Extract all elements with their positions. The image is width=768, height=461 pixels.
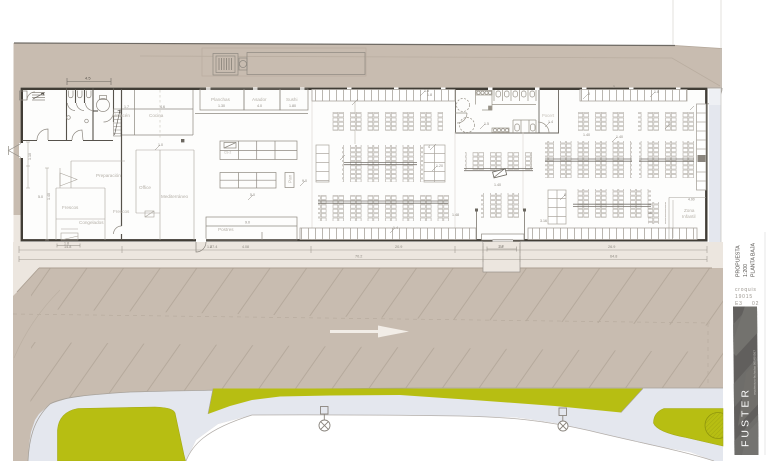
svg-text:Frescos: Frescos [113,209,130,214]
svg-text:1.7: 1.7 [124,105,129,109]
svg-text:CS-2: CS-2 [224,151,231,155]
svg-text:PROPUESTA: PROPUESTA [736,245,742,277]
svg-text:Planchas: Planchas [211,97,231,102]
svg-text:PLANTA BAJA: PLANTA BAJA [751,243,757,277]
svg-text:1.40: 1.40 [494,183,501,187]
svg-text:Asador: Asador [252,97,267,102]
svg-text:1.40: 1.40 [47,193,51,200]
svg-text:64.8: 64.8 [610,255,617,259]
svg-text:1.20: 1.20 [436,164,443,168]
svg-text:Office: Office [139,185,151,190]
svg-text:1:200: 1:200 [743,264,749,277]
svg-text:02: 02 [752,301,759,307]
svg-text:1.4: 1.4 [548,120,553,124]
svg-text:4.0: 4.0 [257,104,262,108]
svg-text:8: 8 [564,193,566,197]
svg-text:5: 5 [613,85,615,89]
svg-text:1.30: 1.30 [218,104,225,108]
svg-text:5: 5 [668,122,670,126]
svg-text:4.5: 4.5 [85,76,91,81]
svg-text:1.4: 1.4 [393,226,398,230]
svg-text:19015: 19015 [735,294,753,300]
svg-text:70.2: 70.2 [355,255,362,259]
svg-text:Frescos: Frescos [62,205,79,210]
svg-text:Pocert: Pocert [542,113,555,118]
svg-text:Sushi: Sushi [286,97,298,102]
svg-text:Infantil: Infantil [682,214,696,219]
svg-text:5.0: 5.0 [38,195,43,199]
svg-text:16: 16 [648,211,652,215]
svg-text:1.8: 1.8 [427,93,432,97]
svg-text:Congelados: Congelados [79,220,104,225]
svg-text:3.8: 3.8 [498,245,503,249]
svg-text:5.0: 5.0 [250,193,255,197]
svg-text:1.10: 1.10 [28,153,32,160]
svg-text:FUSTER: FUSTER [740,387,752,447]
svg-text:27.4: 27.4 [210,245,217,249]
svg-text:4.00: 4.00 [688,198,695,202]
svg-text:5: 5 [588,92,590,96]
svg-text:9.0: 9.0 [302,179,307,183]
svg-text:1.8: 1.8 [654,90,659,94]
svg-text:Pan: Pan [288,174,293,183]
svg-text:26.9: 26.9 [608,245,615,249]
svg-text:Zona: Zona [684,208,695,213]
svg-text:3.16: 3.16 [540,219,547,223]
svg-text:4: 4 [428,145,430,149]
svg-text:4.08: 4.08 [242,245,249,249]
svg-text:1.5: 1.5 [484,122,489,126]
svg-text:croquis: croquis [735,287,757,293]
svg-text:Cocina: Cocina [149,113,164,118]
svg-text:1.48: 1.48 [452,213,459,217]
svg-text:Almacén: Almacén [112,113,130,118]
svg-text:9.0: 9.0 [245,221,250,225]
svg-text:E3: E3 [735,301,743,307]
svg-text:14.8: 14.8 [64,245,71,249]
svg-text:4.6: 4.6 [160,105,165,109]
svg-text:Mediterráneo: Mediterráneo [161,194,189,199]
svg-text:1.80: 1.80 [289,104,296,108]
svg-text:1.40: 1.40 [616,135,623,139]
svg-text:Preparación: Preparación [96,173,121,178]
svg-text:Postres: Postres [218,227,234,232]
svg-text:1.0: 1.0 [158,143,163,147]
svg-text:1.40: 1.40 [583,133,590,137]
svg-text:arquitectura-fachadas 96545656: arquitectura-fachadas 965456567 [753,350,757,395]
svg-text:20.9: 20.9 [395,245,402,249]
svg-text:1.8: 1.8 [424,89,429,93]
